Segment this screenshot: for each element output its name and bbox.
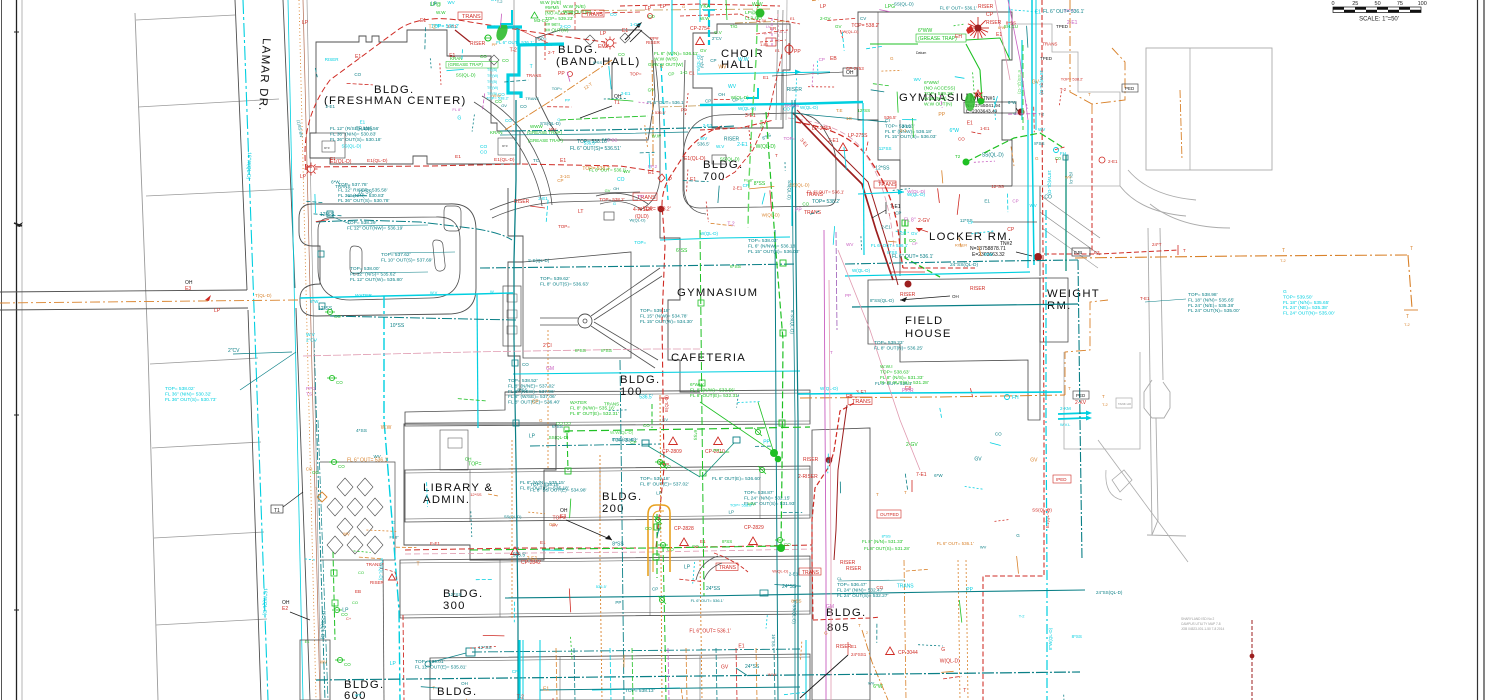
svg-text:T(QL-D): T(QL-D) xyxy=(255,293,272,298)
svg-text:WV: WV xyxy=(355,692,362,697)
svg-text:(GREASE TRAP): (GREASE TRAP) xyxy=(527,130,562,135)
svg-text:CP: CP xyxy=(912,241,918,246)
svg-text:2-CO: 2-CO xyxy=(560,24,571,29)
svg-text:W.V.L: W.V.L xyxy=(1060,422,1071,427)
svg-text:T-2: T-2 xyxy=(510,47,517,53)
svg-text:TOP= 539.18': TOP= 539.18' xyxy=(530,482,560,488)
svg-text:1G: 1G xyxy=(846,116,853,121)
svg-text:E2: E2 xyxy=(282,606,288,612)
svg-text:T/G: T/G xyxy=(730,24,738,29)
svg-text:PED: PED xyxy=(1125,86,1135,91)
svg-text:W(QL-D): W(QL-D) xyxy=(772,569,789,574)
svg-text:CP: CP xyxy=(743,183,749,188)
svg-text:TOP=: TOP= xyxy=(630,72,642,77)
svg-text:WV: WV xyxy=(448,0,455,5)
svg-text:PP: PP xyxy=(938,112,945,118)
svg-text:W(QL-D): W(QL-D) xyxy=(843,29,860,34)
svg-text:JOB 04523-001-1-50 7-8 2014: JOB 04523-001-1-50 7-8 2014 xyxy=(1181,627,1224,631)
svg-text:T-2: T-2 xyxy=(1019,614,1026,619)
svg-text:GV: GV xyxy=(605,188,611,193)
svg-text:2-E1: 2-E1 xyxy=(527,556,538,562)
svg-text:6*W: 6*W xyxy=(873,684,883,690)
svg-text:FL 6" (NNW)= 536.18': FL 6" (NNW)= 536.18' xyxy=(885,129,932,135)
svg-text:2-E1: 2-E1 xyxy=(1067,20,1078,26)
svg-text:CO: CO xyxy=(876,585,883,590)
svg-text:2"CV: 2"CV xyxy=(712,36,722,41)
svg-text:IPED: IPED xyxy=(1056,477,1067,482)
svg-text:8*SS: 8*SS xyxy=(593,60,602,65)
svg-text:PP: PP xyxy=(565,98,571,103)
svg-text:8"SS(QL-D): 8"SS(QL-D) xyxy=(790,310,795,334)
svg-text:G: G xyxy=(1283,289,1287,295)
svg-text:CV: CV xyxy=(860,16,866,21)
svg-text:GV: GV xyxy=(1032,80,1040,86)
svg-text:536.5': 536.5' xyxy=(639,394,653,400)
svg-text:12*SS: 12*SS xyxy=(875,165,890,171)
svg-text:8"W(QL-D): 8"W(QL-D) xyxy=(378,558,384,581)
svg-text:WATER: WATER xyxy=(570,400,587,406)
svg-text:TPED: TPED xyxy=(1040,56,1053,61)
svg-text:WV: WV xyxy=(980,545,987,550)
svg-text:TS'(B): TS'(B) xyxy=(487,68,497,72)
svg-text:OUTPED: OUTPED xyxy=(880,512,900,517)
svg-text:EB: EB xyxy=(830,56,837,62)
svg-text:FL 8" OUT(E)= 537.02': FL 8" OUT(E)= 537.02' xyxy=(640,481,689,487)
svg-text:T: T xyxy=(1406,314,1409,320)
svg-text:TOP= 538.2': TOP= 538.2' xyxy=(730,502,753,507)
svg-text:FL 8" (N/S)= 531.33': FL 8" (N/S)= 531.33' xyxy=(880,375,923,381)
svg-text:FL 24" (N/E)= 535.38': FL 24" (N/E)= 535.38' xyxy=(1188,303,1234,309)
svg-text:(GREASE TRAP): (GREASE TRAP) xyxy=(448,62,483,67)
svg-text:E1: E1 xyxy=(560,158,566,164)
svg-text:TS'(W): TS'(W) xyxy=(487,86,498,90)
svg-text:2-E1: 2-E1 xyxy=(881,225,891,230)
svg-text:W(QL-D): W(QL-D) xyxy=(907,189,925,194)
svg-text:E1: E1 xyxy=(763,75,769,80)
svg-text:PP: PP xyxy=(966,587,973,593)
svg-text:FL 6" OUT= 536.1': FL 6" OUT= 536.1' xyxy=(807,190,844,195)
svg-text:6*W: 6*W xyxy=(984,252,993,257)
svg-text:SS(QL-D): SS(QL-D) xyxy=(894,1,914,6)
svg-text:2-E1: 2-E1 xyxy=(733,185,743,190)
svg-text:LIBRARY &: LIBRARY & xyxy=(423,482,493,494)
svg-text:WV: WV xyxy=(846,242,853,247)
svg-text:TOP= 539.23': TOP= 539.23' xyxy=(874,340,904,346)
svg-text:E1: E1 xyxy=(790,16,796,21)
svg-text:G: G xyxy=(890,56,894,61)
svg-text:16"SS: 16"SS xyxy=(771,634,776,647)
svg-text:TOP= 538.63': TOP= 538.63' xyxy=(880,369,910,375)
svg-text:8*SS: 8*SS xyxy=(575,348,586,354)
svg-text:RISER: RISER xyxy=(370,580,385,585)
svg-text:SS(QL-D): SS(QL-D) xyxy=(790,182,810,187)
svg-text:12*SS: 12*SS xyxy=(448,592,462,598)
svg-text:G: G xyxy=(1035,156,1039,161)
svg-text:CO: CO xyxy=(338,464,345,469)
svg-text:200: 200 xyxy=(602,503,625,515)
svg-text:CO: CO xyxy=(336,380,343,385)
svg-text:SS(QL-D): SS(QL-D) xyxy=(504,514,522,519)
svg-text:2-E1: 2-E1 xyxy=(789,571,799,576)
svg-text:PP: PP xyxy=(492,42,498,47)
svg-text:EJB: EJB xyxy=(1074,250,1082,255)
svg-text:TOP= 538.00': TOP= 538.00' xyxy=(350,266,380,272)
svg-text:W.W: W.W xyxy=(652,134,662,139)
svg-text:CP-2753: CP-2753 xyxy=(846,66,864,71)
svg-text:GV: GV xyxy=(721,665,729,671)
svg-text:TOP= 538.87': TOP= 538.87' xyxy=(744,490,774,496)
svg-text:W.W (N/E): W.W (N/E) xyxy=(540,0,562,5)
svg-text:8*SS: 8*SS xyxy=(1006,21,1016,26)
svg-text:FL 8" OUT(N)= 536.25': FL 8" OUT(N)= 536.25' xyxy=(874,345,923,351)
svg-text:W.W: W.W xyxy=(752,2,763,8)
svg-text:2-E1: 2-E1 xyxy=(902,124,912,129)
svg-text:FL 36" (NIN)= 530.32': FL 36" (NIN)= 530.32' xyxy=(165,391,211,397)
svg-text:WV: WV xyxy=(320,660,327,665)
svg-text:WV: WV xyxy=(868,681,875,686)
svg-text:TRANS: TRANS xyxy=(525,96,539,101)
svg-text:2-E1: 2-E1 xyxy=(538,196,548,201)
svg-text:T-2: T-2 xyxy=(429,25,436,31)
svg-text:2"CV: 2"CV xyxy=(228,348,240,354)
svg-text:OH: OH xyxy=(718,92,725,97)
svg-text:CL: CL xyxy=(837,576,843,581)
svg-text:T.E: T.E xyxy=(836,108,843,113)
svg-text:CP-2829: CP-2829 xyxy=(744,525,764,531)
svg-text:6'SS: 6'SS xyxy=(759,120,765,129)
svg-text:W.W: W.W xyxy=(381,425,392,431)
svg-text:LP-275S: LP-275S xyxy=(848,133,868,139)
svg-text:2-E1: 2-E1 xyxy=(703,123,713,128)
svg-text:6*SS: 6*SS xyxy=(693,430,698,440)
svg-text:LP: LP xyxy=(660,4,667,10)
svg-text:FL 6" OUT= 536.1': FL 6" OUT= 536.1' xyxy=(589,167,626,172)
svg-text:E1: E1 xyxy=(455,154,461,160)
svg-text:LP: LP xyxy=(820,4,827,10)
svg-text:LP: LP xyxy=(302,20,309,26)
svg-text:TRANS: TRANS xyxy=(719,565,737,571)
svg-text:T: T xyxy=(876,492,879,497)
svg-text:TS: TS xyxy=(306,391,312,397)
svg-text:FL 8" OUT(S)= 531.28': FL 8" OUT(S)= 531.28' xyxy=(880,380,929,386)
svg-text:CO: CO xyxy=(645,526,652,531)
svg-text:18"W(QL-D): 18"W(QL-D) xyxy=(1047,170,1052,195)
svg-text:CO: CO xyxy=(958,137,965,142)
svg-text:CP-3044: CP-3044 xyxy=(898,650,918,656)
svg-text:TOP=: TOP= xyxy=(552,86,563,91)
svg-text:TOP= 538.2': TOP= 538.2' xyxy=(1061,77,1084,82)
svg-text:CP: CP xyxy=(557,178,563,183)
svg-text:LP: LP xyxy=(729,510,735,515)
svg-text:W.W: W.W xyxy=(700,16,710,21)
svg-text:#6#Mh: #6#Mh xyxy=(545,5,559,10)
svg-text:TOP= 539.23': TOP= 539.23' xyxy=(545,16,573,21)
svg-text:WV: WV xyxy=(700,136,707,141)
svg-text:CP: CP xyxy=(1007,227,1015,233)
svg-text:536.5': 536.5' xyxy=(884,115,896,120)
svg-text:FL 8" (NSW)= 537.06': FL 8" (NSW)= 537.06' xyxy=(508,389,555,395)
svg-text:CO: CO xyxy=(480,144,487,150)
svg-text:FH: FH xyxy=(1060,151,1066,156)
svg-text:SS(QL-D): SS(QL-D) xyxy=(549,435,569,440)
svg-text:CO: CO xyxy=(480,149,487,155)
svg-text:SHARYLAND ISD No 2: SHARYLAND ISD No 2 xyxy=(1181,617,1214,621)
svg-text:12*SS: 12*SS xyxy=(478,645,492,651)
svg-text:GV: GV xyxy=(974,456,982,462)
svg-text:E3: E3 xyxy=(185,286,191,292)
svg-text:LP: LP xyxy=(342,608,349,614)
svg-text:WV: WV xyxy=(728,84,737,90)
svg-text:6*SS: 6*SS xyxy=(552,424,563,430)
svg-text:TRANS: TRANS xyxy=(462,14,481,20)
svg-text:PP: PP xyxy=(845,293,851,298)
svg-text:RISER: RISER xyxy=(325,57,340,62)
svg-text:LP: LP xyxy=(431,2,438,8)
svg-text:RISER: RISER xyxy=(836,644,852,650)
svg-text:FL 6" OUT= 536.1': FL 6" OUT= 536.1' xyxy=(496,40,533,45)
svg-text:8"W(QL-D): 8"W(QL-D) xyxy=(1048,627,1053,650)
svg-text:6*SS: 6*SS xyxy=(676,248,688,254)
svg-text:RISER: RISER xyxy=(955,243,967,248)
svg-text:TOP= 537.62': TOP= 537.62' xyxy=(381,252,411,258)
svg-text:FL 36" OUT(S)= 530.73': FL 36" OUT(S)= 530.73' xyxy=(165,397,216,403)
svg-text:TOP= 538.98': TOP= 538.98' xyxy=(1188,292,1218,298)
svg-text:8"W: 8"W xyxy=(310,299,319,304)
svg-text:8*SS: 8*SS xyxy=(612,541,624,547)
svg-text:T: T xyxy=(1183,248,1186,253)
svg-text:E1: E1 xyxy=(648,170,654,176)
svg-text:BLDG.: BLDG. xyxy=(558,44,598,56)
svg-text:FL 6" OUT= 536.1': FL 6" OUT= 536.1' xyxy=(1043,9,1084,15)
svg-text:FL 8" OUT(E)= 532.31': FL 8" OUT(E)= 532.31' xyxy=(570,411,619,417)
svg-text:OH: OH xyxy=(952,294,959,299)
svg-text:PP: PP xyxy=(763,440,770,446)
svg-text:FL 6" OUT= 536.1': FL 6" OUT= 536.1' xyxy=(689,629,730,635)
svg-text:FL 8": FL 8" xyxy=(390,535,400,540)
svg-text:LP: LP xyxy=(645,6,652,12)
svg-text:1-E1: 1-E1 xyxy=(980,126,990,131)
svg-text:W.W (N/E): W.W (N/E) xyxy=(563,4,586,10)
svg-text:FL 12" OUT(E)= 535.81': FL 12" OUT(E)= 535.81' xyxy=(415,664,466,670)
svg-text:TRANS: TRANS xyxy=(897,584,915,590)
svg-text:CP: CP xyxy=(819,57,825,62)
svg-text:PP: PP xyxy=(794,49,801,55)
svg-text:2"CV: 2"CV xyxy=(306,337,318,343)
svg-text:12*SS: 12*SS xyxy=(879,146,892,151)
svg-text:75: 75 xyxy=(1397,1,1403,7)
svg-text:FL 6" OUT= 536.1': FL 6" OUT= 536.1' xyxy=(347,458,388,464)
svg-text:CO: CO xyxy=(995,432,1002,437)
svg-text:536.5': 536.5' xyxy=(584,141,596,146)
svg-text:GV: GV xyxy=(648,62,655,67)
svg-text:W.V: W.V xyxy=(306,332,316,338)
svg-text:CP: CP xyxy=(1012,198,1018,203)
svg-text:E1(QL-D): E1(QL-D) xyxy=(494,157,515,163)
svg-text:TRANS: TRANS xyxy=(1042,42,1057,47)
svg-text:SCALE: 1"=50': SCALE: 1"=50' xyxy=(1359,17,1399,23)
svg-text:TOP=: TOP= xyxy=(553,516,566,522)
svg-text:CP: CP xyxy=(901,231,907,236)
svg-text:TN#1: TN#1 xyxy=(983,96,995,102)
svg-text:T: T xyxy=(530,64,533,70)
svg-text:6*W: 6*W xyxy=(998,25,1006,30)
svg-text:LP: LP xyxy=(684,565,691,571)
svg-text:T: T xyxy=(963,688,966,694)
svg-text:E1(QL-D): E1(QL-D) xyxy=(684,156,706,162)
svg-text:FL 8": FL 8" xyxy=(744,177,754,182)
svg-text:PP/R: PP/R xyxy=(902,388,914,394)
svg-text:WWW: WWW xyxy=(530,124,543,129)
svg-text:E1: E1 xyxy=(967,121,973,127)
svg-text:RISER: RISER xyxy=(514,199,530,205)
svg-text:T: T xyxy=(858,623,861,628)
svg-text:E1: E1 xyxy=(543,687,549,693)
svg-text:FL 6" OUT= 536.1': FL 6" OUT= 536.1' xyxy=(937,541,974,546)
svg-text:2: 2 xyxy=(866,631,868,635)
svg-text:16"W(QL-D): 16"W(QL-D) xyxy=(245,152,252,180)
svg-text:TOP= 539.18': TOP= 539.18' xyxy=(640,476,670,482)
svg-text:E3: E3 xyxy=(1094,250,1100,255)
svg-text:16"W(QL-D): 16"W(QL-D) xyxy=(261,588,268,616)
svg-text:CO: CO xyxy=(618,52,625,57)
svg-text:W.W: W.W xyxy=(738,57,749,63)
svg-text:PED: PED xyxy=(1076,393,1086,398)
svg-text:CO: CO xyxy=(784,542,791,547)
svg-text:FL 6" OUT= 536.1': FL 6" OUT= 536.1' xyxy=(691,598,724,603)
svg-text:FL 15" (N/W)= 534.78': FL 15" (N/W)= 534.78' xyxy=(640,313,687,319)
svg-text:TOP=: TOP= xyxy=(784,136,796,141)
svg-text:TOP= 538.03': TOP= 538.03' xyxy=(748,238,778,244)
svg-text:1-G: 1-G xyxy=(680,70,688,75)
svg-text:G: G xyxy=(660,64,664,69)
svg-text:TRANS: TRANS xyxy=(878,182,897,188)
svg-text:TOP= 538.2': TOP= 538.2' xyxy=(486,96,509,101)
svg-text:GV: GV xyxy=(662,417,668,422)
svg-text:536.5': 536.5' xyxy=(655,110,666,115)
svg-text:CAMPUS UTILITY MAP 7-8: CAMPUS UTILITY MAP 7-8 xyxy=(1181,622,1221,626)
svg-text:CO: CO xyxy=(505,118,512,123)
svg-text:CO: CO xyxy=(1044,195,1052,201)
svg-text:8*SS: 8*SS xyxy=(1072,634,1082,639)
svg-text:CO: CO xyxy=(344,662,351,667)
svg-text:FL 6" OUT= 536.1': FL 6" OUT= 536.1' xyxy=(871,243,908,248)
svg-text:CP-2754: CP-2754 xyxy=(690,26,710,32)
svg-text:FL 24" (NE)= 535.38': FL 24" (NE)= 535.38' xyxy=(1283,305,1328,311)
svg-text:FL 6" (N/NW)= 536.18': FL 6" (N/NW)= 536.18' xyxy=(748,243,796,249)
svg-text:CO: CO xyxy=(610,12,617,17)
svg-text:TOP= 538.2': TOP= 538.2' xyxy=(643,207,671,213)
svg-text:FL 6" OUT= 536.1': FL 6" OUT= 536.1' xyxy=(892,254,933,260)
svg-text:RISER: RISER xyxy=(803,457,819,463)
svg-text:FL 12" OUT(W)= 535.80': FL 12" OUT(W)= 535.80' xyxy=(350,277,403,283)
svg-text:FL 8" OUT(E)= 532.31': FL 8" OUT(E)= 532.31' xyxy=(690,393,739,399)
svg-text:CP-2828: CP-2828 xyxy=(674,526,694,532)
svg-text:W(QL-D): W(QL-D) xyxy=(762,212,780,217)
svg-text:MTR: MTR xyxy=(502,144,508,148)
svg-text:FL 18" (N/N)= 535.65': FL 18" (N/N)= 535.65' xyxy=(1188,297,1234,303)
svg-text:FL 8": FL 8" xyxy=(452,107,462,112)
svg-text:2-E1: 2-E1 xyxy=(326,104,336,109)
svg-text:T-2: T-2 xyxy=(727,222,734,228)
svg-text:WEIGHT: WEIGHT xyxy=(1047,288,1100,300)
svg-text:PP: PP xyxy=(713,448,719,453)
svg-text:LV: LV xyxy=(766,24,771,29)
svg-text:CP: CP xyxy=(668,71,674,76)
svg-text:E-E1: E-E1 xyxy=(430,541,441,546)
svg-text:PP: PP xyxy=(558,71,565,77)
svg-text:T-2: T-2 xyxy=(517,695,524,700)
svg-text:12*SS: 12*SS xyxy=(470,492,482,497)
svg-text:LP: LP xyxy=(656,491,662,496)
svg-text:8"SS(QL-D): 8"SS(QL-D) xyxy=(870,298,894,303)
svg-text:2-RISER: 2-RISER xyxy=(798,474,818,480)
svg-text:2-KV: 2-KV xyxy=(1075,400,1087,406)
svg-text:(FRESHMAN CENTER): (FRESHMAN CENTER) xyxy=(324,95,467,107)
svg-text:2-T: 2-T xyxy=(548,50,555,55)
svg-text:8*SS: 8*SS xyxy=(517,387,527,392)
svg-text:WV: WV xyxy=(623,169,630,174)
svg-text:(GREASE TRAP): (GREASE TRAP) xyxy=(528,138,563,143)
svg-text:FL 15" OUT(S)= 536.03': FL 15" OUT(S)= 536.03' xyxy=(748,249,799,255)
svg-text:RISER: RISER xyxy=(978,4,994,10)
svg-text:TOP=: TOP= xyxy=(634,240,646,245)
svg-text:G: G xyxy=(557,117,560,122)
svg-text:MTR: MTR xyxy=(324,146,330,150)
svg-text:FL 36" OUT(S)= 530.18': FL 36" OUT(S)= 530.18' xyxy=(330,137,381,143)
svg-text:LP: LP xyxy=(600,31,607,37)
svg-text:EB: EB xyxy=(846,394,853,400)
svg-text:TOP= 538.02': TOP= 538.02' xyxy=(165,386,195,392)
svg-text:PP: PP xyxy=(795,208,802,214)
svg-text:GM: GM xyxy=(546,366,554,372)
svg-text:CO: CO xyxy=(648,14,655,19)
svg-text:G: G xyxy=(1016,533,1020,538)
svg-text:CO: CO xyxy=(312,470,319,475)
svg-text:BLDG.: BLDG. xyxy=(437,686,477,698)
svg-text:8*SS: 8*SS xyxy=(601,348,612,354)
svg-text:7-E1: 7-E1 xyxy=(890,204,901,210)
svg-text:6*W: 6*W xyxy=(950,128,960,134)
svg-text:TOP=: TOP= xyxy=(468,462,481,468)
svg-text:T-E1: T-E1 xyxy=(1140,296,1150,301)
svg-text:E1: E1 xyxy=(775,48,781,53)
svg-text:FL 12" (N/S)= 535.62': FL 12" (N/S)= 535.62' xyxy=(350,271,396,277)
svg-text:TOP= 539.01': TOP= 539.01' xyxy=(415,659,445,665)
svg-text:WV: WV xyxy=(551,523,558,528)
svg-text:CO: CO xyxy=(522,362,529,367)
svg-text:GV: GV xyxy=(911,231,918,236)
svg-text:FL 24" OUT(N)= 535.00': FL 24" OUT(N)= 535.00' xyxy=(1188,308,1240,314)
svg-text:W.W(QL-D): W.W(QL-D) xyxy=(610,430,634,435)
svg-text:E1: E1 xyxy=(540,540,546,545)
svg-text:FL 6" OUT(S)= 536.51': FL 6" OUT(S)= 536.51' xyxy=(570,146,621,152)
svg-text:2-KM: 2-KM xyxy=(1060,406,1071,411)
svg-text:E1: E1 xyxy=(1035,10,1041,16)
svg-text:100: 100 xyxy=(1418,1,1427,7)
svg-text:8*SS: 8*SS xyxy=(1034,141,1044,146)
svg-text:2-GV: 2-GV xyxy=(918,218,930,224)
svg-text:CO: CO xyxy=(352,600,358,605)
svg-text:2-E1: 2-E1 xyxy=(621,91,631,96)
svg-text:(GREASE TRAP): (GREASE TRAP) xyxy=(918,36,957,42)
svg-text:T: T xyxy=(1410,246,1413,252)
svg-text:GV: GV xyxy=(491,0,498,2)
svg-text:G: G xyxy=(392,520,396,525)
svg-text:10*SS: 10*SS xyxy=(390,323,405,329)
svg-text:W.V: W.V xyxy=(716,144,724,149)
svg-text:1-CO: 1-CO xyxy=(630,22,641,27)
svg-text:TOP= 539.23': TOP= 539.23' xyxy=(924,91,954,97)
